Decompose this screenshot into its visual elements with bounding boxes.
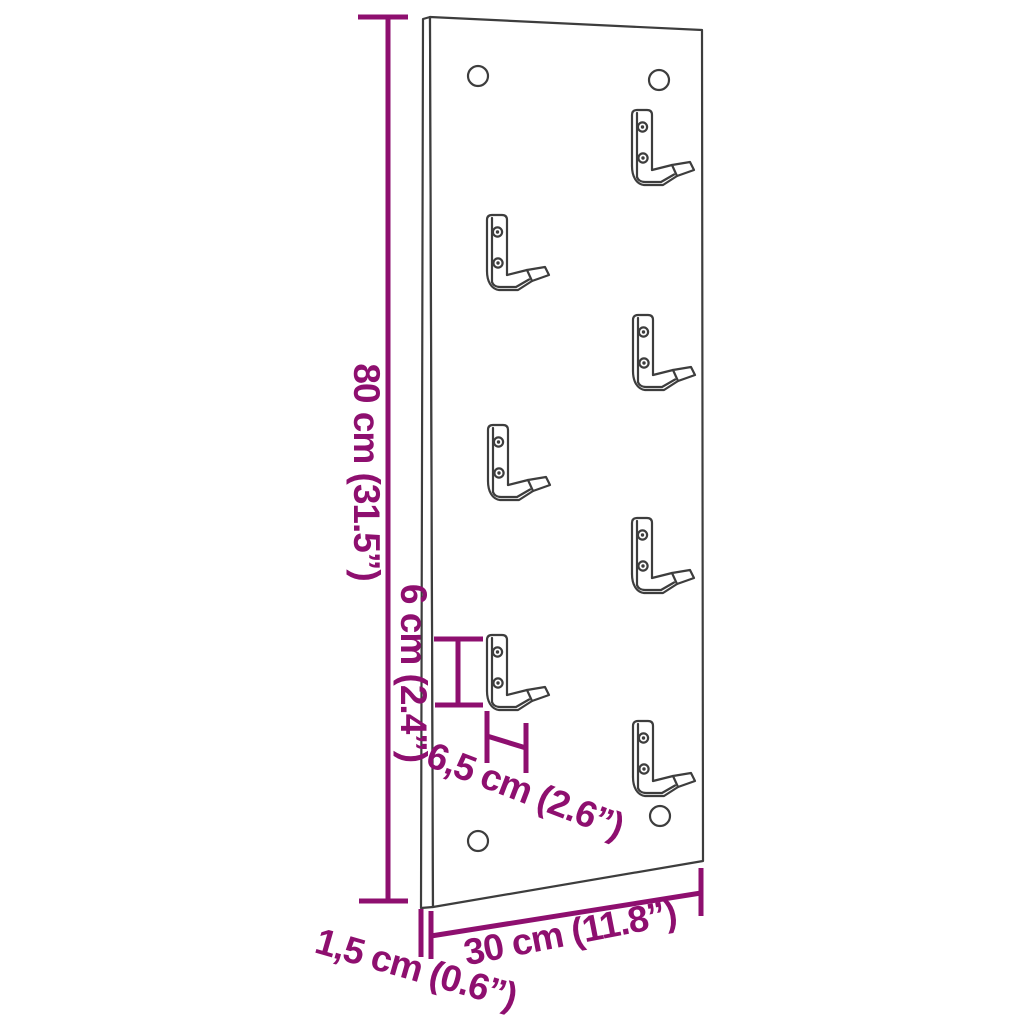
- height-dimension-label: 80 cm (31.5”): [345, 363, 387, 580]
- line-drawing: [0, 0, 1024, 1024]
- diagram-canvas: 80 cm (31.5”) 6 cm (2.4”) 6,5 cm (2.6”) …: [0, 0, 1024, 1024]
- hook-gap-dimension-label: 6 cm (2.4”): [392, 584, 434, 762]
